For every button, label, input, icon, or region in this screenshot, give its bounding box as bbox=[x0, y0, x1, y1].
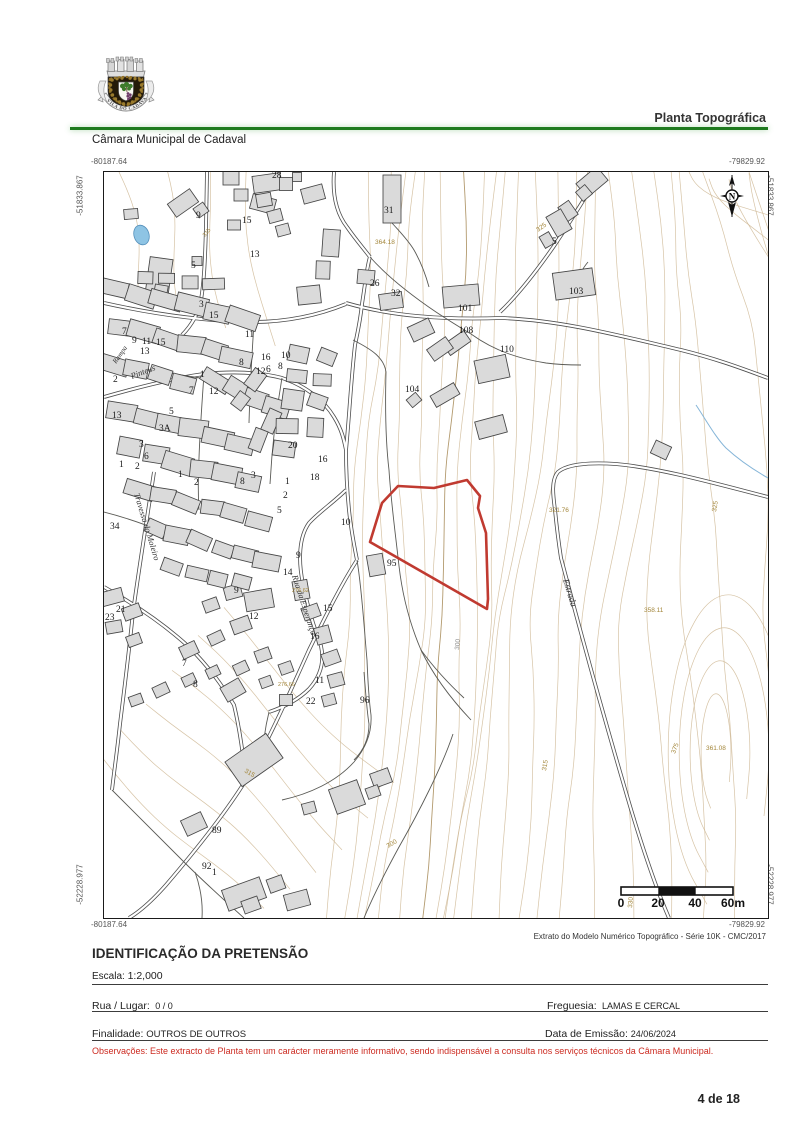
svg-text:325: 325 bbox=[711, 500, 720, 512]
svg-text:300: 300 bbox=[386, 838, 399, 850]
svg-text:9: 9 bbox=[234, 586, 239, 596]
svg-text:108: 108 bbox=[459, 326, 474, 336]
svg-text:9: 9 bbox=[132, 336, 137, 346]
svg-text:5: 5 bbox=[277, 506, 282, 516]
svg-text:20: 20 bbox=[288, 441, 298, 451]
svg-text:9: 9 bbox=[196, 211, 201, 221]
svg-text:358.11: 358.11 bbox=[644, 607, 664, 614]
svg-text:315: 315 bbox=[541, 759, 550, 771]
svg-text:2: 2 bbox=[113, 375, 118, 385]
svg-text:2: 2 bbox=[283, 491, 288, 501]
svg-text:104: 104 bbox=[405, 385, 420, 395]
svg-text:22: 22 bbox=[306, 697, 316, 707]
svg-text:13: 13 bbox=[140, 347, 150, 357]
svg-text:60m: 60m bbox=[721, 896, 745, 910]
svg-text:9: 9 bbox=[296, 551, 301, 561]
svg-text:276.66: 276.66 bbox=[278, 682, 295, 688]
svg-text:31: 31 bbox=[384, 206, 394, 216]
svg-text:101: 101 bbox=[458, 304, 473, 314]
svg-text:12: 12 bbox=[256, 367, 266, 377]
svg-text:15: 15 bbox=[242, 216, 252, 226]
svg-text:1: 1 bbox=[200, 370, 205, 380]
svg-text:315: 315 bbox=[202, 227, 213, 238]
svg-text:34: 34 bbox=[110, 522, 120, 532]
svg-text:3: 3 bbox=[199, 300, 204, 310]
svg-text:6: 6 bbox=[266, 365, 271, 375]
svg-text:5: 5 bbox=[552, 237, 557, 247]
svg-text:103: 103 bbox=[569, 287, 584, 297]
svg-text:10: 10 bbox=[281, 351, 291, 361]
svg-text:40: 40 bbox=[688, 896, 702, 910]
svg-text:28: 28 bbox=[272, 172, 282, 181]
svg-text:13: 13 bbox=[112, 411, 122, 421]
svg-text:110: 110 bbox=[500, 345, 514, 355]
svg-text:8: 8 bbox=[278, 362, 283, 372]
svg-text:300: 300 bbox=[454, 638, 462, 650]
svg-text:7: 7 bbox=[182, 659, 187, 669]
svg-text:11: 11 bbox=[245, 330, 254, 340]
svg-text:5: 5 bbox=[191, 261, 196, 271]
svg-text:10: 10 bbox=[341, 518, 351, 528]
svg-text:364.18: 364.18 bbox=[375, 239, 395, 246]
svg-text:6: 6 bbox=[144, 452, 149, 462]
svg-text:5: 5 bbox=[169, 407, 174, 417]
svg-text:92: 92 bbox=[202, 862, 212, 872]
svg-text:2: 2 bbox=[135, 462, 140, 472]
svg-text:26: 26 bbox=[370, 279, 380, 289]
svg-text:20: 20 bbox=[651, 896, 665, 910]
svg-text:23: 23 bbox=[105, 613, 115, 623]
svg-text:8: 8 bbox=[239, 358, 244, 368]
svg-text:3: 3 bbox=[139, 440, 144, 450]
svg-text:18: 18 bbox=[310, 473, 320, 483]
svg-text:16: 16 bbox=[318, 455, 328, 465]
svg-text:Estrada: Estrada bbox=[561, 577, 579, 609]
svg-text:11: 11 bbox=[142, 337, 151, 347]
svg-text:8: 8 bbox=[240, 477, 245, 487]
svg-text:12: 12 bbox=[209, 387, 219, 397]
svg-text:361.08: 361.08 bbox=[706, 745, 726, 752]
svg-text:330: 330 bbox=[627, 896, 635, 908]
svg-text:8: 8 bbox=[193, 680, 198, 690]
svg-text:7: 7 bbox=[122, 327, 127, 337]
svg-text:N: N bbox=[729, 192, 736, 202]
svg-text:2: 2 bbox=[194, 478, 199, 488]
svg-text:1: 1 bbox=[119, 460, 124, 470]
svg-text:21: 21 bbox=[116, 605, 126, 615]
svg-text:15: 15 bbox=[156, 338, 166, 348]
svg-text:13: 13 bbox=[250, 250, 260, 260]
svg-text:1: 1 bbox=[212, 868, 217, 878]
svg-text:1: 1 bbox=[178, 470, 183, 480]
svg-text:3: 3 bbox=[251, 471, 256, 481]
svg-text:3A: 3A bbox=[159, 424, 171, 434]
svg-text:7: 7 bbox=[189, 386, 194, 396]
svg-text:276.62: 276.62 bbox=[292, 588, 309, 594]
svg-text:96: 96 bbox=[360, 696, 370, 706]
svg-text:0: 0 bbox=[618, 896, 625, 910]
svg-text:11: 11 bbox=[315, 676, 324, 686]
svg-text:15: 15 bbox=[323, 604, 333, 614]
svg-text:89: 89 bbox=[212, 826, 222, 836]
svg-text:15: 15 bbox=[209, 311, 219, 321]
svg-text:12: 12 bbox=[249, 612, 259, 622]
svg-text:321.76: 321.76 bbox=[549, 507, 569, 514]
svg-text:95: 95 bbox=[387, 559, 397, 569]
svg-text:1: 1 bbox=[285, 477, 290, 487]
svg-text:16: 16 bbox=[261, 353, 271, 363]
svg-text:32: 32 bbox=[391, 289, 401, 299]
